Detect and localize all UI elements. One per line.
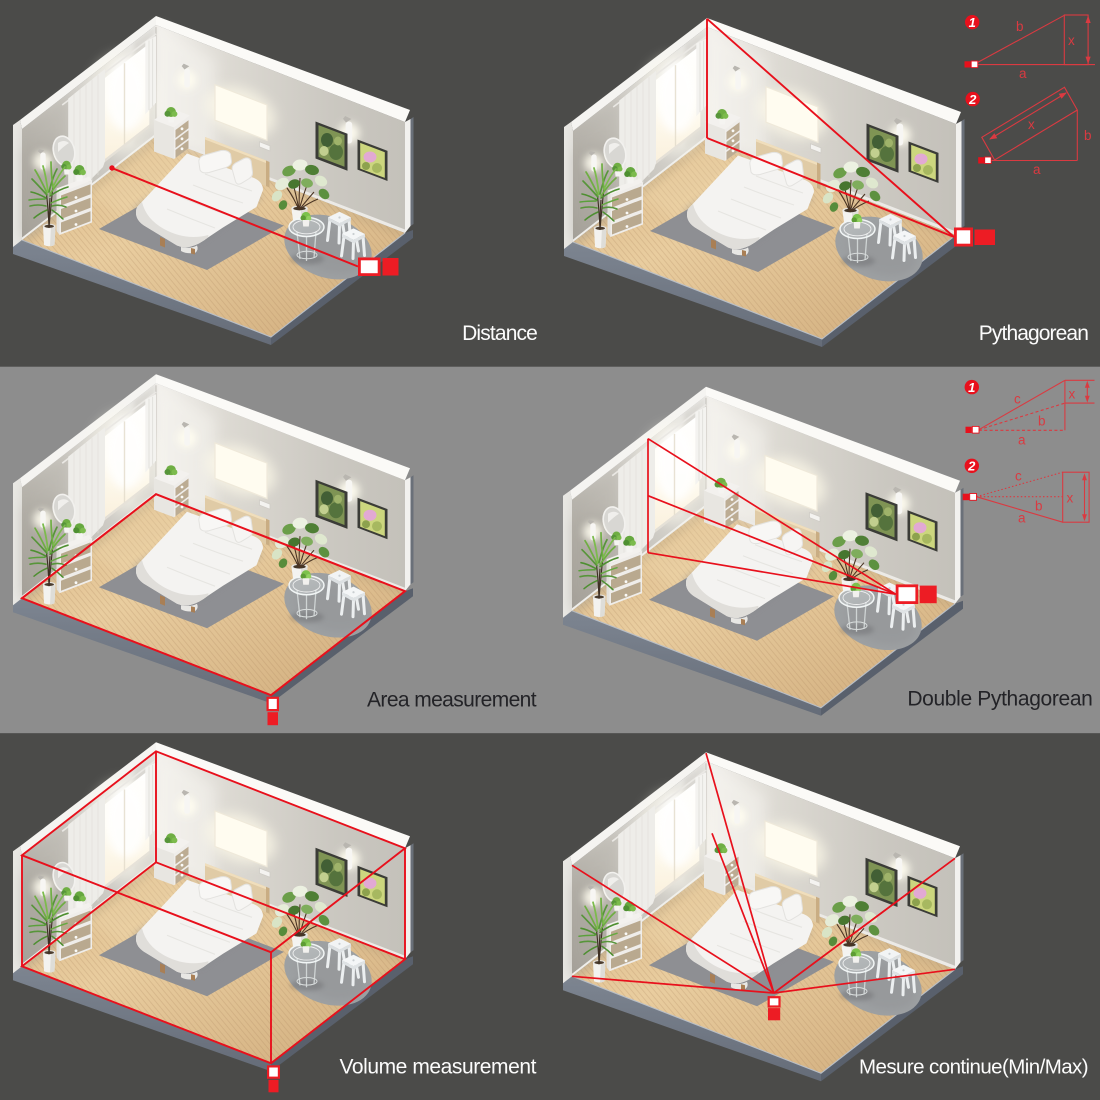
svg-text:Area measurement: Area measurement xyxy=(367,689,537,712)
svg-text:2: 2 xyxy=(967,459,976,474)
svg-text:Pythagorean: Pythagorean xyxy=(979,322,1088,345)
svg-text:Distance: Distance xyxy=(462,322,537,345)
svg-text:x: x xyxy=(1028,117,1035,132)
svg-text:Volume measurement: Volume measurement xyxy=(339,1055,536,1078)
svg-text:c: c xyxy=(1014,392,1021,407)
svg-text:a: a xyxy=(1018,511,1026,526)
svg-text:b: b xyxy=(1016,19,1024,34)
svg-text:x: x xyxy=(1069,387,1076,402)
svg-text:c: c xyxy=(1015,469,1022,484)
svg-text:b: b xyxy=(1035,499,1043,514)
svg-text:x: x xyxy=(1068,33,1075,48)
svg-text:Double Pythagorean: Double Pythagorean xyxy=(907,688,1092,711)
svg-text:1: 1 xyxy=(969,15,976,30)
svg-text:Mesure continue(Min/Max): Mesure continue(Min/Max) xyxy=(859,1055,1088,1078)
svg-text:a: a xyxy=(1018,433,1026,448)
svg-text:2: 2 xyxy=(968,92,977,107)
svg-text:b: b xyxy=(1038,414,1046,429)
svg-text:b: b xyxy=(1084,128,1092,143)
svg-text:a: a xyxy=(1019,66,1027,81)
svg-text:a: a xyxy=(1033,162,1041,177)
svg-text:x: x xyxy=(1067,491,1074,506)
svg-text:1: 1 xyxy=(968,380,975,395)
